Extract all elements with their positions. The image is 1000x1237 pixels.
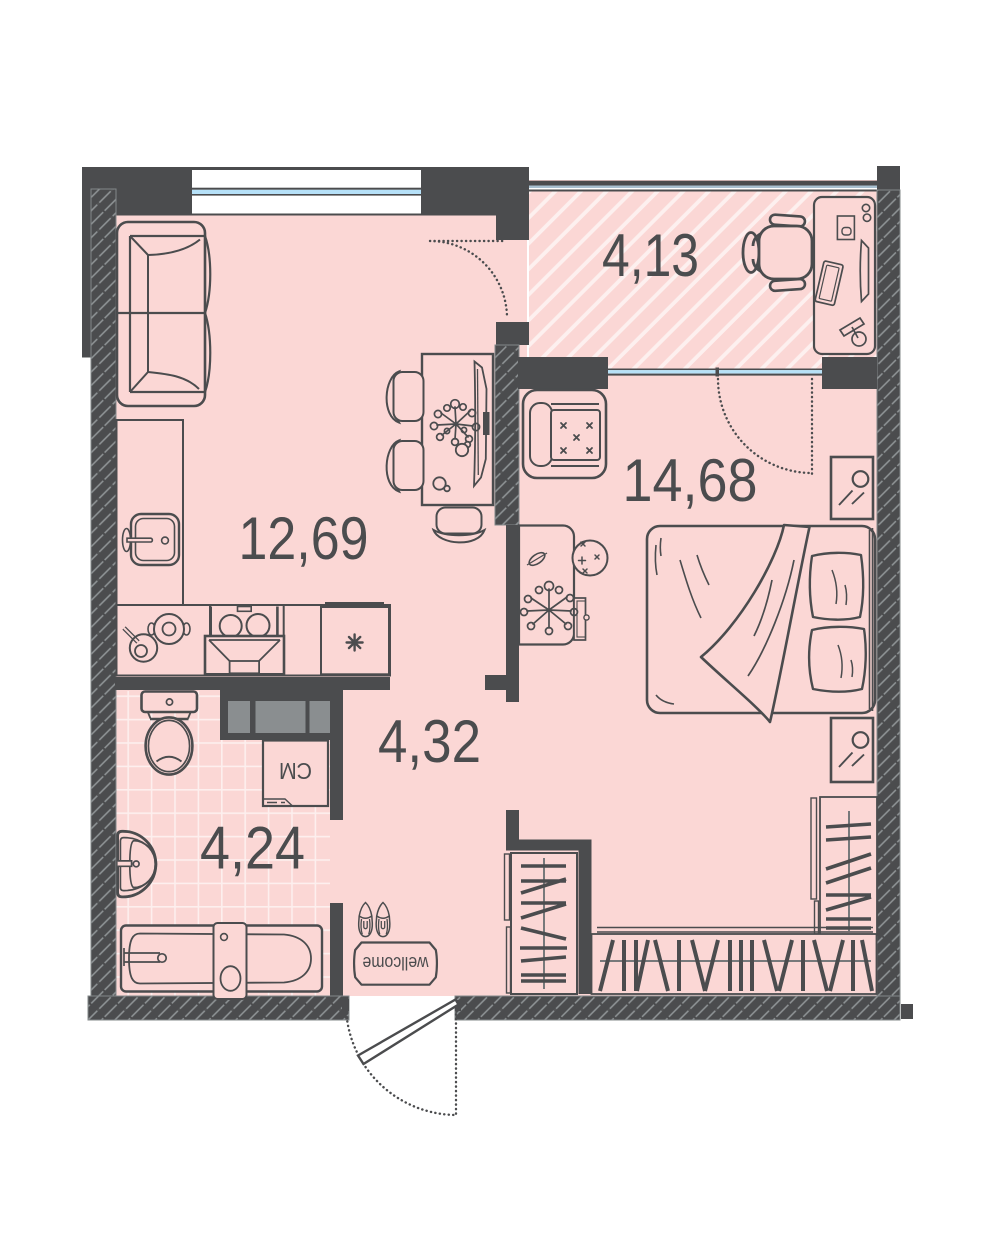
svg-text:СМ: СМ: [279, 758, 312, 784]
svg-text:wellcome: wellcome: [363, 953, 430, 974]
svg-text:4,32: 4,32: [378, 708, 481, 775]
svg-text:12,69: 12,69: [239, 505, 369, 572]
svg-text:4,24: 4,24: [200, 815, 305, 882]
svg-text:4,13: 4,13: [602, 222, 699, 289]
svg-text:14,68: 14,68: [623, 447, 758, 514]
